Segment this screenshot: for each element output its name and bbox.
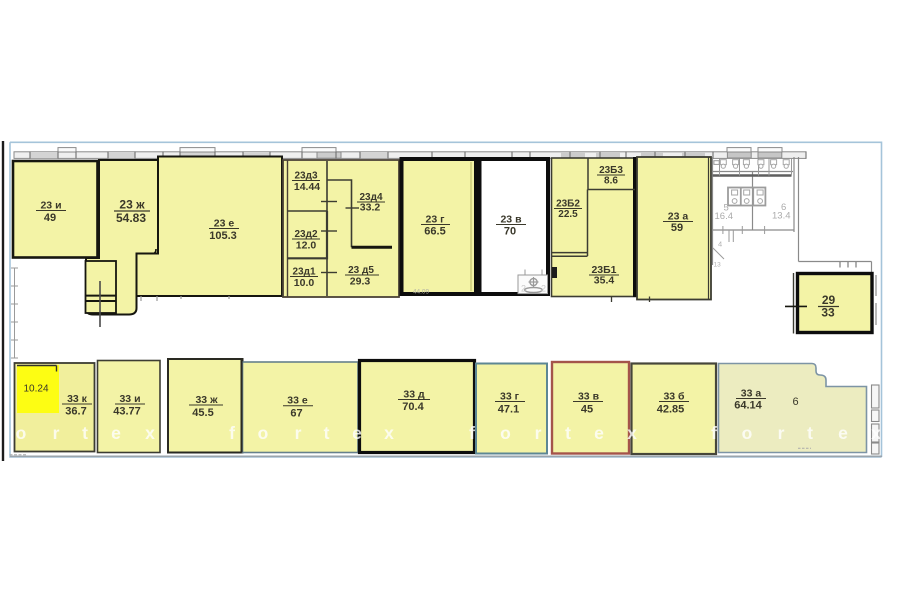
svg-text:e: e bbox=[594, 423, 604, 443]
svg-text:f: f bbox=[711, 423, 717, 443]
svg-text:22.5: 22.5 bbox=[558, 209, 578, 220]
svg-text:o: o bbox=[16, 423, 27, 443]
svg-text:t: t bbox=[324, 423, 330, 443]
svg-text:33 ж: 33 ж bbox=[195, 394, 218, 406]
svg-text:67: 67 bbox=[290, 408, 302, 420]
svg-text:23д3: 23д3 bbox=[294, 171, 317, 182]
svg-text:47.1: 47.1 bbox=[498, 404, 519, 416]
svg-text:54.83: 54.83 bbox=[116, 211, 146, 225]
svg-text:33 а: 33 а bbox=[741, 388, 762, 400]
svg-text:64.14: 64.14 bbox=[734, 400, 762, 412]
svg-text:4: 4 bbox=[718, 240, 722, 249]
svg-text:45: 45 bbox=[581, 404, 593, 416]
svg-text:43.77: 43.77 bbox=[113, 406, 141, 418]
svg-text:66.5: 66.5 bbox=[424, 226, 445, 238]
svg-text:33 и: 33 и bbox=[119, 393, 140, 405]
svg-text:x: x bbox=[145, 423, 155, 443]
svg-text:16.4: 16.4 bbox=[715, 211, 734, 222]
svg-text:44.09: 44.09 bbox=[413, 289, 430, 296]
svg-text:x: x bbox=[871, 423, 881, 443]
svg-text:e: e bbox=[111, 423, 121, 443]
svg-text:23 а: 23 а bbox=[668, 211, 689, 223]
svg-text:13: 13 bbox=[714, 262, 722, 269]
svg-text:x: x bbox=[627, 423, 637, 443]
svg-text:33 е: 33 е bbox=[287, 395, 308, 407]
svg-text:70: 70 bbox=[504, 226, 516, 238]
svg-text:70.4: 70.4 bbox=[402, 401, 424, 413]
svg-text:r: r bbox=[53, 423, 60, 443]
svg-text:2: 2 bbox=[521, 284, 526, 294]
svg-text:59: 59 bbox=[671, 222, 683, 234]
svg-text:6: 6 bbox=[792, 396, 798, 408]
svg-text:r: r bbox=[778, 423, 785, 443]
svg-text:33 д: 33 д bbox=[403, 389, 425, 401]
svg-text:r: r bbox=[535, 423, 542, 443]
svg-text:23д2: 23д2 bbox=[294, 229, 317, 240]
svg-text:29.3: 29.3 bbox=[350, 276, 371, 288]
svg-text:33 к: 33 к bbox=[67, 393, 88, 405]
svg-text:105.3: 105.3 bbox=[209, 230, 237, 242]
svg-text:33: 33 bbox=[821, 306, 835, 320]
svg-text:23 г: 23 г bbox=[426, 214, 446, 226]
svg-text:12.0: 12.0 bbox=[296, 240, 317, 252]
svg-text:f: f bbox=[229, 423, 235, 443]
svg-text:14.44: 14.44 bbox=[294, 181, 320, 193]
svg-text:33 в: 33 в bbox=[578, 391, 600, 403]
svg-text:10.0: 10.0 bbox=[294, 277, 315, 289]
svg-text:e: e bbox=[352, 423, 362, 443]
svg-text:8.6: 8.6 bbox=[604, 176, 618, 187]
svg-text:23 и: 23 и bbox=[40, 200, 61, 212]
svg-text:35.4: 35.4 bbox=[594, 275, 615, 287]
svg-text:23Б3: 23Б3 bbox=[599, 165, 623, 176]
svg-text:o: o bbox=[742, 423, 753, 443]
svg-text:2: 2 bbox=[541, 284, 546, 294]
svg-text:45.5: 45.5 bbox=[192, 407, 213, 419]
svg-text:13.4: 13.4 bbox=[772, 211, 791, 222]
svg-text:33 б: 33 б bbox=[663, 391, 685, 403]
svg-text:t: t bbox=[565, 423, 571, 443]
svg-text:23 е: 23 е bbox=[214, 218, 235, 230]
svg-text:10.24: 10.24 bbox=[23, 384, 48, 395]
svg-text:23Б2: 23Б2 bbox=[556, 199, 580, 210]
svg-text:o: o bbox=[258, 423, 269, 443]
svg-text:49: 49 bbox=[44, 212, 56, 224]
svg-text:t: t bbox=[807, 423, 813, 443]
svg-text:f: f bbox=[469, 423, 475, 443]
svg-text:36.7: 36.7 bbox=[65, 406, 86, 418]
svg-text:23д1: 23д1 bbox=[292, 267, 315, 278]
svg-text:23 ж: 23 ж bbox=[119, 198, 145, 212]
svg-text:33.2: 33.2 bbox=[360, 202, 381, 214]
svg-text:t: t bbox=[82, 423, 88, 443]
svg-text:e: e bbox=[838, 423, 848, 443]
svg-text:42.85: 42.85 bbox=[657, 403, 685, 415]
svg-text:33 г: 33 г bbox=[500, 391, 520, 403]
svg-text:r: r bbox=[295, 423, 302, 443]
svg-text:23 в: 23 в bbox=[500, 214, 522, 226]
svg-text:o: o bbox=[500, 423, 511, 443]
svg-text:x: x bbox=[384, 423, 394, 443]
svg-text:23 д5: 23 д5 bbox=[348, 265, 374, 276]
